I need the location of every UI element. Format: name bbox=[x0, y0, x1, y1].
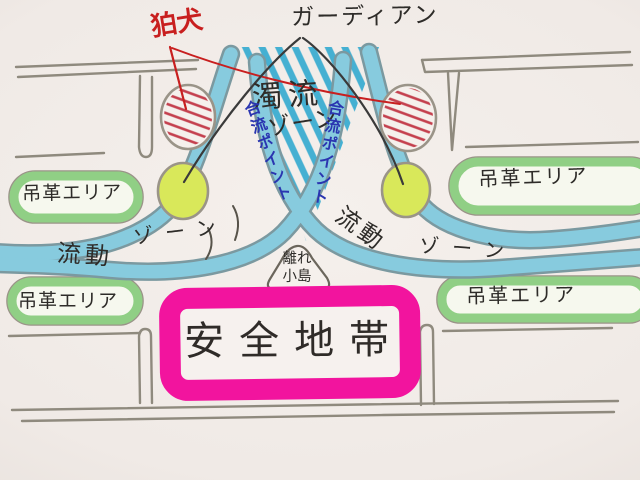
label-safety-zone: 安全地帯 bbox=[184, 318, 404, 364]
ledge-top-left bbox=[16, 153, 104, 157]
ledge-top-right bbox=[466, 142, 638, 147]
pillar-top-right bbox=[448, 73, 459, 150]
guardian-circle-left bbox=[158, 163, 208, 219]
beam-top-left-lower bbox=[18, 69, 196, 77]
label-isolated-island-line1: 離れ bbox=[283, 251, 312, 267]
label-flow-zone-left-part1: 流動 bbox=[56, 240, 114, 270]
ledge-mid-right bbox=[443, 328, 612, 331]
label-isolated-island-line2: 小島 bbox=[283, 269, 312, 285]
guardian-circle-right bbox=[382, 163, 430, 217]
hand-drawn-diagram: ガーディアン 狛犬 濁流 ゾーン 合流ポイント 合流ポイント 流動 ゾーン 流動… bbox=[0, 0, 640, 480]
label-strap-area-bottom-right: 吊革エリア bbox=[466, 283, 576, 307]
pillar-bottom-left bbox=[139, 329, 152, 403]
platform-edge-upper bbox=[12, 401, 618, 410]
label-strap-area-bottom-left: 吊革エリア bbox=[18, 291, 118, 312]
komainu-circle-left-hatch bbox=[164, 88, 212, 146]
label-strap-area-top-right: 吊革エリア bbox=[478, 164, 589, 190]
label-strap-area-top-left: 吊革エリア bbox=[22, 182, 122, 205]
platform-edge-lower bbox=[22, 412, 614, 421]
beam-top-right-lower bbox=[422, 60, 632, 72]
label-guardian: ガーディアン bbox=[291, 3, 439, 31]
pillar-top-left bbox=[139, 76, 152, 157]
beam-top-right-upper bbox=[422, 52, 630, 60]
diagram-canvas bbox=[0, 0, 640, 480]
pillar-bottom-right bbox=[420, 325, 434, 405]
label-isolated-island: 離れ 小島 bbox=[269, 250, 325, 286]
komainu-circle-right-hatch bbox=[383, 88, 433, 148]
beam-top-left-upper bbox=[16, 60, 198, 67]
ledge-mid-left bbox=[9, 333, 140, 336]
